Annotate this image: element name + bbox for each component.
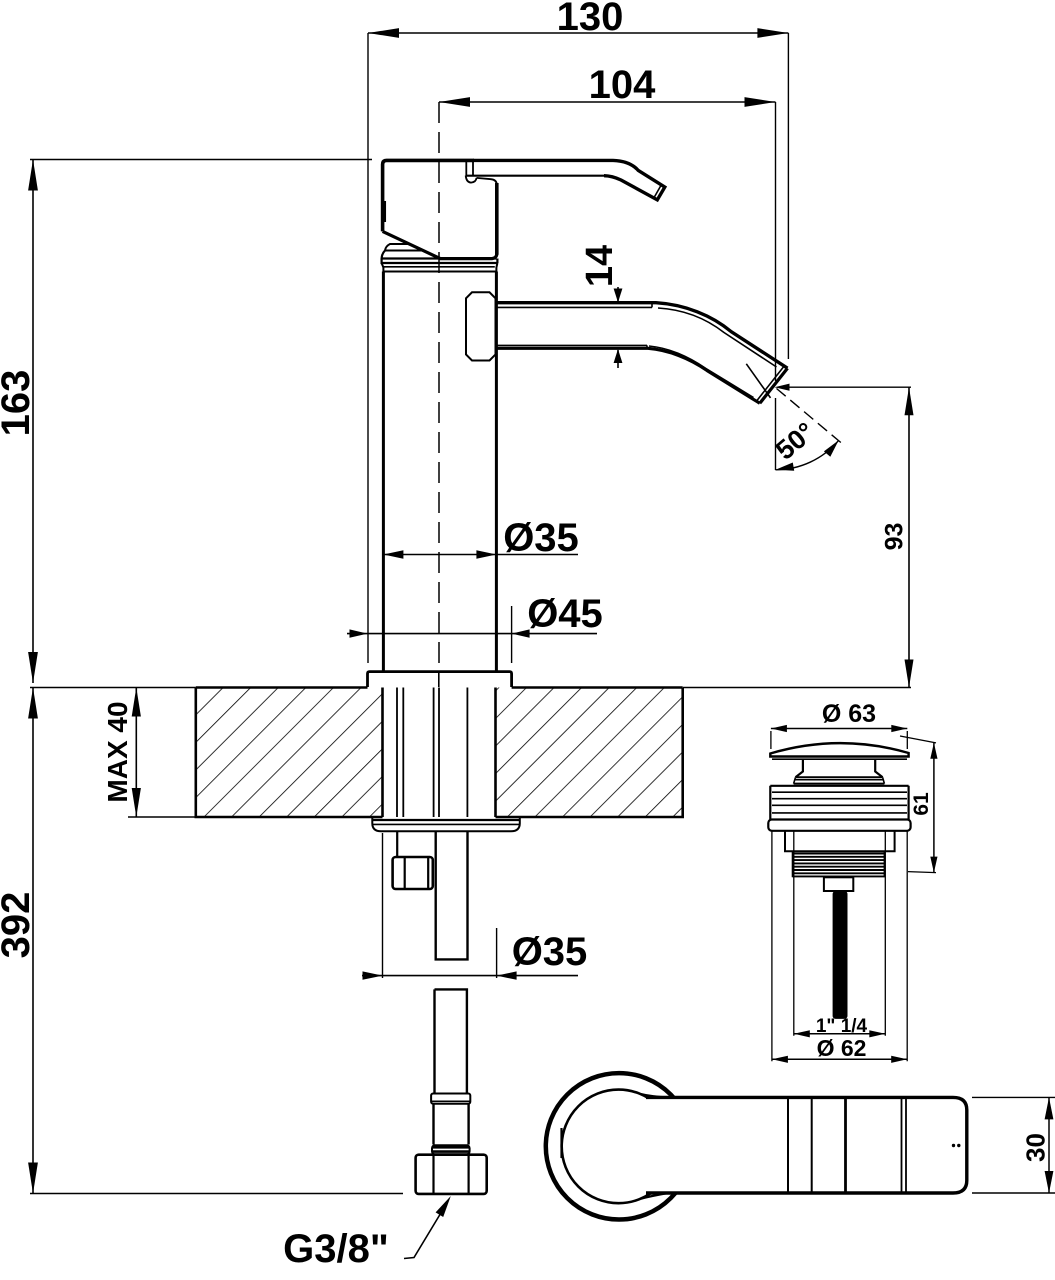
- svg-text:Ø 63: Ø 63: [822, 700, 876, 728]
- svg-text:Ø35: Ø35: [503, 516, 579, 560]
- svg-text:30: 30: [1021, 1133, 1051, 1162]
- svg-text:G3/8": G3/8": [283, 1227, 389, 1271]
- svg-text:104: 104: [589, 63, 656, 107]
- svg-text:MAX 40: MAX 40: [102, 701, 133, 802]
- svg-text:Ø 62: Ø 62: [817, 1035, 867, 1061]
- svg-text:Ø35: Ø35: [512, 930, 588, 974]
- svg-text:14: 14: [579, 245, 621, 287]
- svg-text:61: 61: [910, 792, 933, 816]
- svg-text:Ø45: Ø45: [527, 592, 603, 636]
- svg-text:93: 93: [881, 523, 909, 551]
